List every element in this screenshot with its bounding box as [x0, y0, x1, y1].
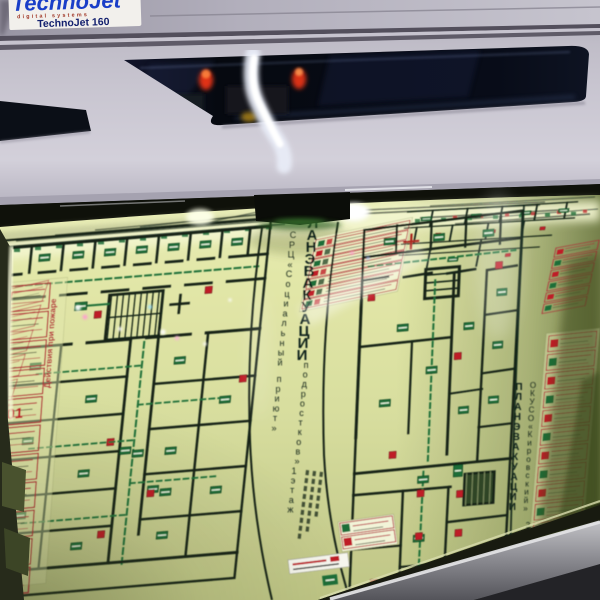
svg-text:С: С [290, 230, 297, 240]
svg-text:Р: Р [289, 240, 295, 250]
svg-text:ы: ы [278, 348, 284, 358]
svg-text:Ц: Ц [288, 250, 295, 260]
svg-text:а: а [282, 308, 287, 318]
svg-text:о: о [285, 279, 290, 289]
svg-text:С: С [286, 269, 293, 279]
svg-text:и: и [283, 299, 288, 309]
svg-text:TechnoJet 160: TechnoJet 160 [37, 16, 110, 30]
svg-text:ь: ь [281, 328, 286, 338]
svg-text:н: н [280, 338, 285, 348]
svg-text:о: о [303, 370, 308, 380]
svg-text:п: п [304, 360, 309, 370]
svg-text:й: й [277, 357, 282, 367]
svg-text:ц: ц [284, 289, 289, 299]
svg-text:л: л [281, 318, 286, 328]
svg-text:»: » [523, 504, 528, 513]
svg-text:«: « [287, 259, 292, 269]
